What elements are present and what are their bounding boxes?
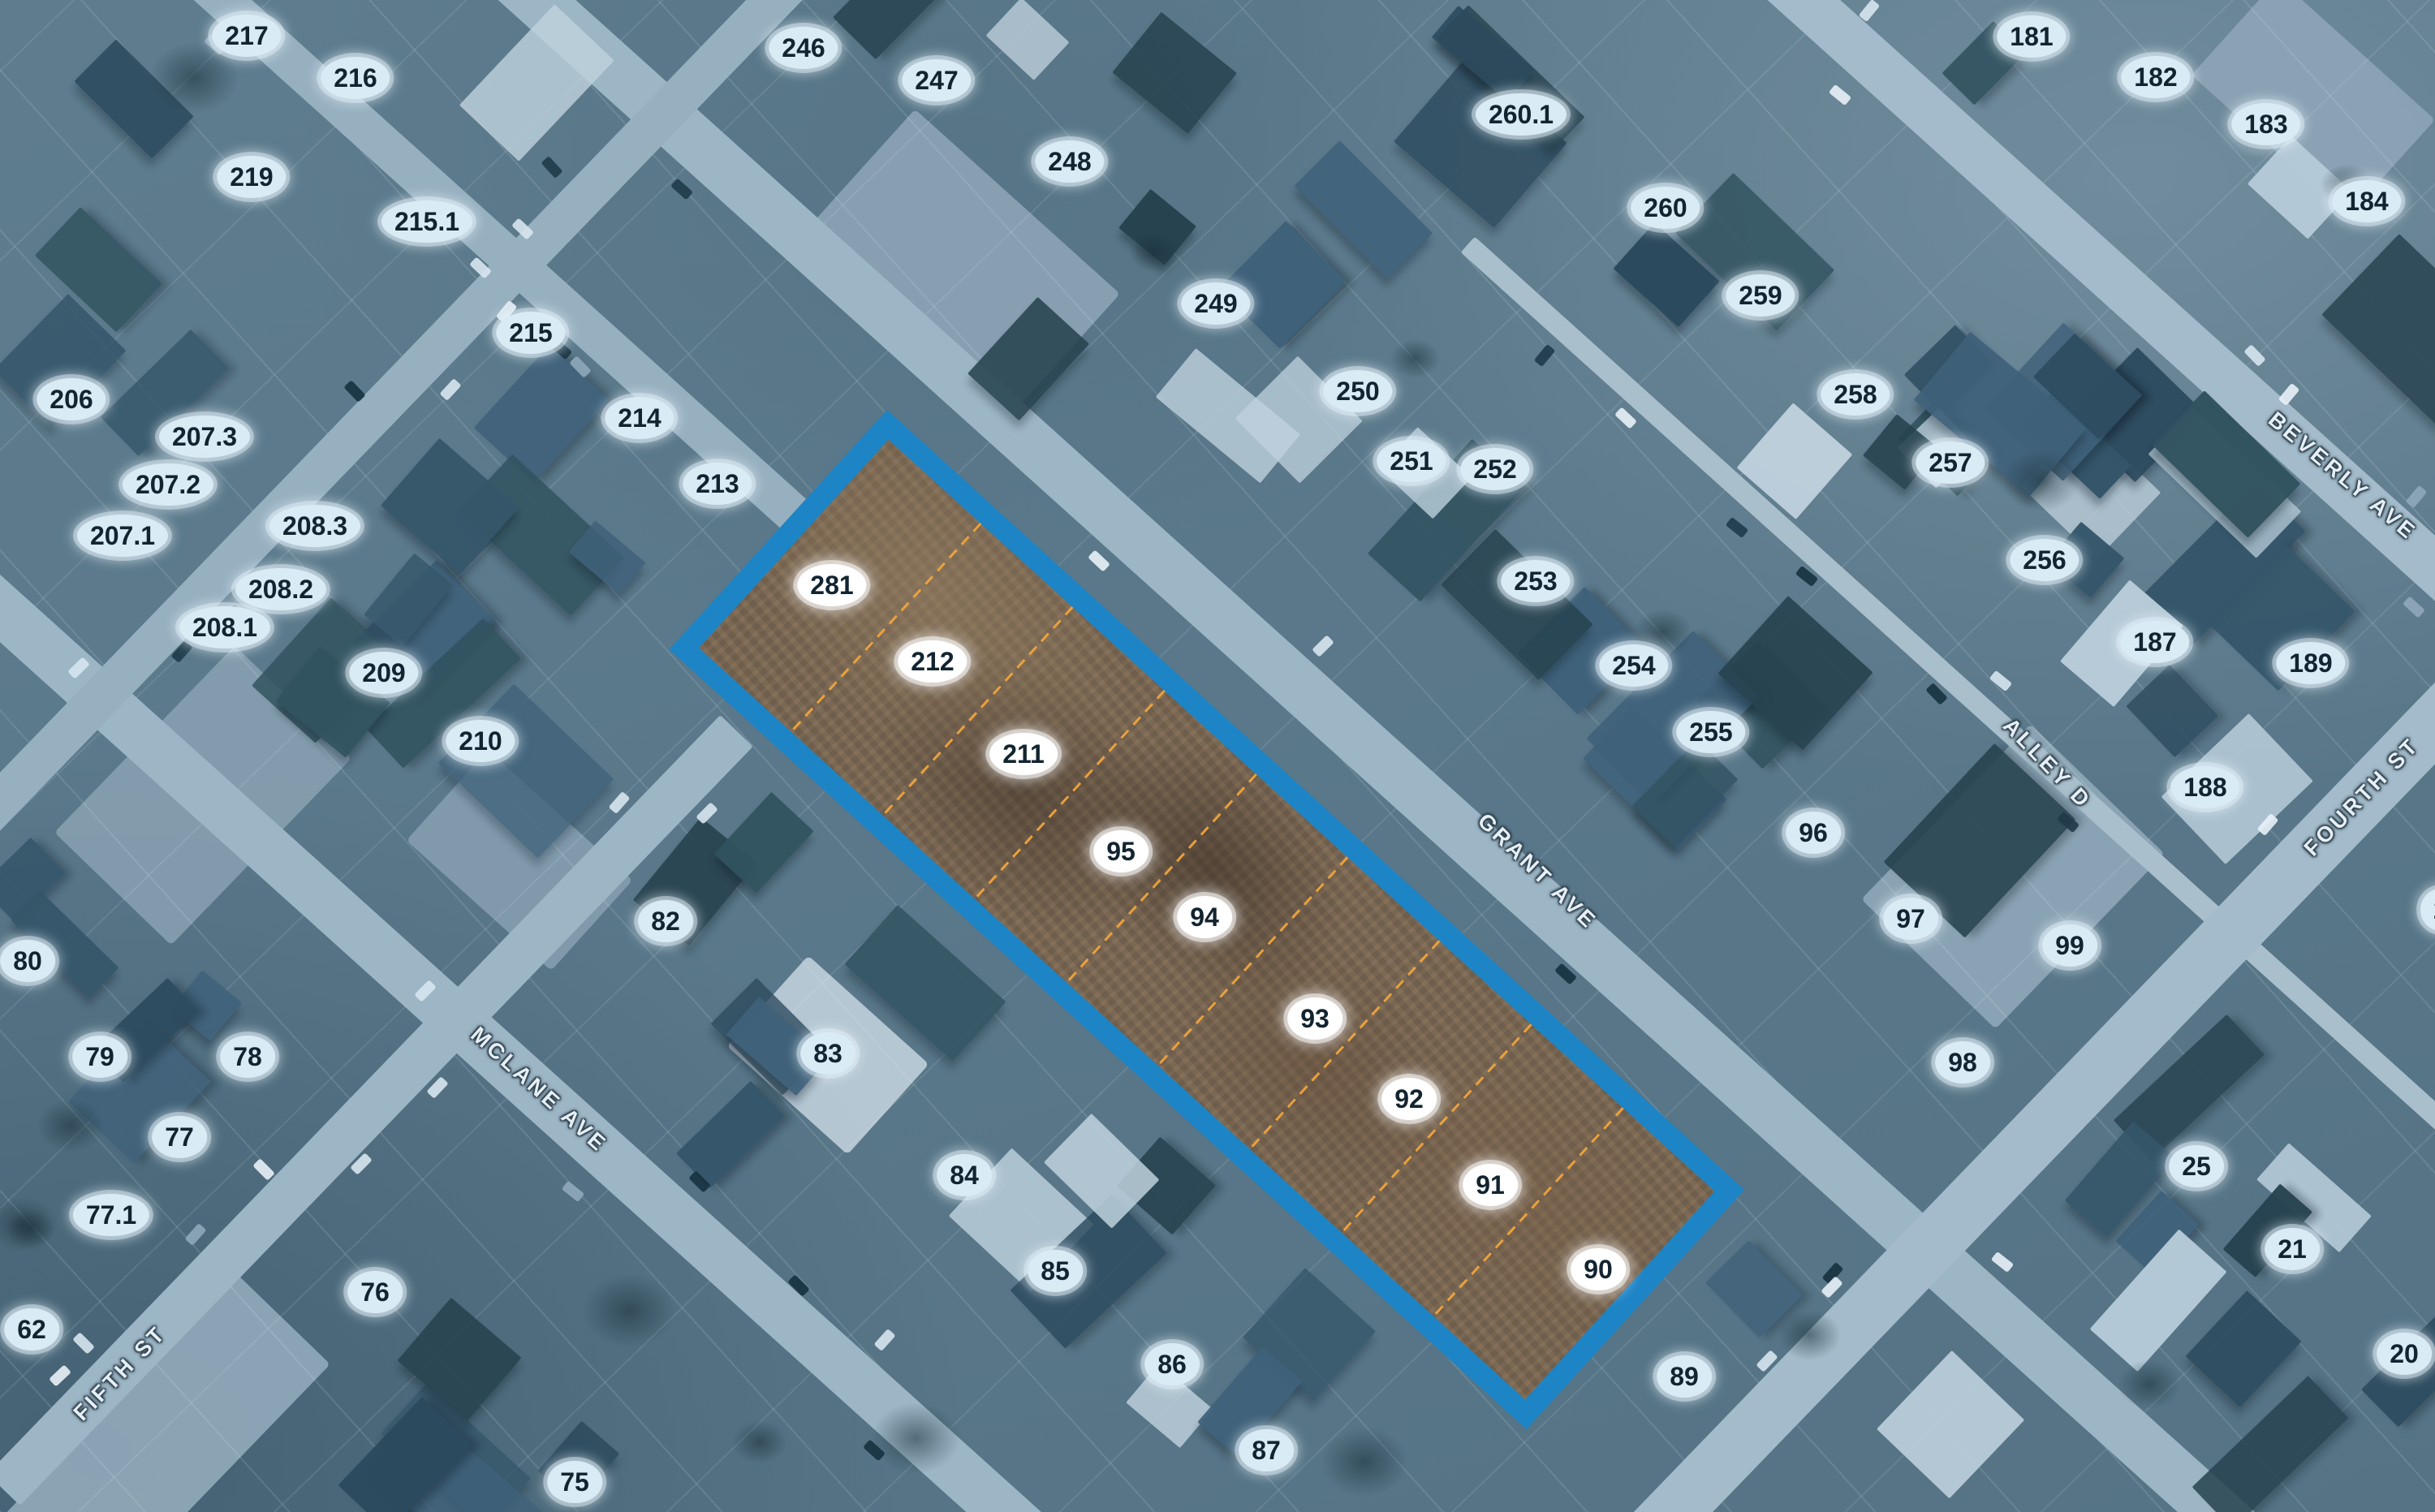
parcel-label-highlighted[interactable]: 211	[989, 733, 1058, 775]
parcel-label[interactable]: 210	[446, 720, 515, 762]
parcel-label[interactable]: 252	[1460, 448, 1529, 490]
parcel-label[interactable]: 85	[1028, 1250, 1083, 1292]
parcel-label[interactable]: 209	[349, 652, 418, 694]
parcel-label[interactable]: 208.1	[179, 606, 270, 648]
parcel-label[interactable]: 98	[1935, 1041, 1990, 1083]
parcel-label[interactable]: 208.3	[269, 505, 360, 547]
parcel-label[interactable]: 21	[2265, 1228, 2320, 1270]
parcel-label[interactable]: 216	[321, 57, 390, 99]
parcel-label[interactable]: 246	[769, 27, 838, 69]
parcel-label[interactable]: 251	[1377, 440, 1446, 482]
parcel-label[interactable]: 189	[2276, 642, 2345, 684]
parcel-label[interactable]: 20	[2377, 1333, 2432, 1375]
parcel-label[interactable]: 214	[605, 397, 674, 439]
parcel-label[interactable]: 250	[1323, 370, 1392, 412]
parcel-label[interactable]: 184	[2332, 180, 2401, 222]
parcel-label[interactable]: 213	[683, 463, 752, 505]
parcel-label[interactable]: 75	[547, 1461, 602, 1503]
parcel-label[interactable]: 25	[2169, 1145, 2224, 1187]
parcel-label[interactable]: 249	[1181, 282, 1250, 325]
parcel-label[interactable]: 253	[1501, 560, 1570, 602]
parcel-label-highlighted[interactable]: 94	[1177, 896, 1232, 938]
parcel-label[interactable]: 260.1	[1476, 93, 1567, 136]
parcel-label[interactable]: 208.2	[235, 568, 326, 610]
parcel-label[interactable]: 96	[1786, 812, 1841, 854]
parcel-label[interactable]: 84	[937, 1154, 992, 1196]
parcel-label[interactable]: 182	[2121, 56, 2190, 98]
parcel-label[interactable]: 215.1	[381, 200, 472, 243]
parcel-label[interactable]: 89	[1657, 1355, 1712, 1398]
parcel-label[interactable]: 215	[496, 312, 565, 354]
parcel-label[interactable]: 219	[217, 156, 286, 198]
parcel-label[interactable]: 183	[2231, 103, 2300, 145]
parcel-label[interactable]: 97	[1883, 898, 1938, 940]
map-canvas[interactable]: BEVERLY AVEALLEY DFOURTH STGRANT AVEMCLA…	[0, 0, 2435, 1512]
parcel-label[interactable]: 254	[1599, 644, 1668, 687]
parcel-label[interactable]: 78	[220, 1036, 275, 1078]
parcel-label[interactable]: 62	[4, 1308, 59, 1350]
parcel-label-highlighted[interactable]: 90	[1571, 1248, 1626, 1290]
parcel-label-highlighted[interactable]: 281	[797, 564, 866, 606]
parcel-label-highlighted[interactable]: 212	[898, 640, 967, 683]
parcel-labels-layer: 217216219215.1215214213206207.3207.2207.…	[0, 0, 2435, 1512]
parcel-label[interactable]: 258	[1821, 373, 1890, 416]
parcel-label[interactable]: 77.1	[73, 1194, 149, 1236]
parcel-label[interactable]: 80	[0, 940, 55, 982]
parcel-label-highlighted[interactable]: 91	[1463, 1164, 1518, 1206]
parcel-label[interactable]: 77	[152, 1116, 207, 1158]
parcel-label[interactable]: 247	[902, 59, 971, 101]
parcel-label[interactable]: 76	[347, 1271, 403, 1313]
parcel-label[interactable]: 86	[1144, 1343, 1200, 1385]
parcel-label[interactable]: 181	[1997, 15, 2066, 58]
parcel-label[interactable]: 2	[2420, 889, 2435, 931]
parcel-label[interactable]: 99	[2042, 924, 2097, 967]
parcel-label[interactable]: 248	[1035, 140, 1104, 183]
parcel-label[interactable]: 259	[1726, 274, 1795, 317]
parcel-label[interactable]: 187	[2120, 621, 2189, 663]
parcel-label[interactable]: 217	[212, 15, 281, 57]
parcel-label[interactable]: 79	[72, 1036, 127, 1078]
parcel-label[interactable]: 207.2	[123, 463, 213, 506]
parcel-label[interactable]: 206	[37, 378, 106, 420]
parcel-label[interactable]: 256	[2010, 539, 2079, 581]
parcel-label-highlighted[interactable]: 92	[1381, 1078, 1437, 1120]
parcel-label[interactable]: 257	[1916, 442, 1985, 484]
parcel-label[interactable]: 207.1	[77, 515, 168, 557]
parcel-label[interactable]: 82	[638, 900, 693, 942]
parcel-label[interactable]: 188	[2170, 766, 2239, 808]
parcel-label[interactable]: 255	[1676, 711, 1745, 753]
parcel-label-highlighted[interactable]: 93	[1287, 997, 1342, 1040]
parcel-label[interactable]: 207.3	[159, 416, 250, 458]
parcel-label-highlighted[interactable]: 95	[1093, 830, 1149, 872]
parcel-label[interactable]: 260	[1631, 187, 1700, 229]
parcel-label[interactable]: 87	[1239, 1429, 1294, 1471]
parcel-label[interactable]: 83	[800, 1032, 855, 1075]
